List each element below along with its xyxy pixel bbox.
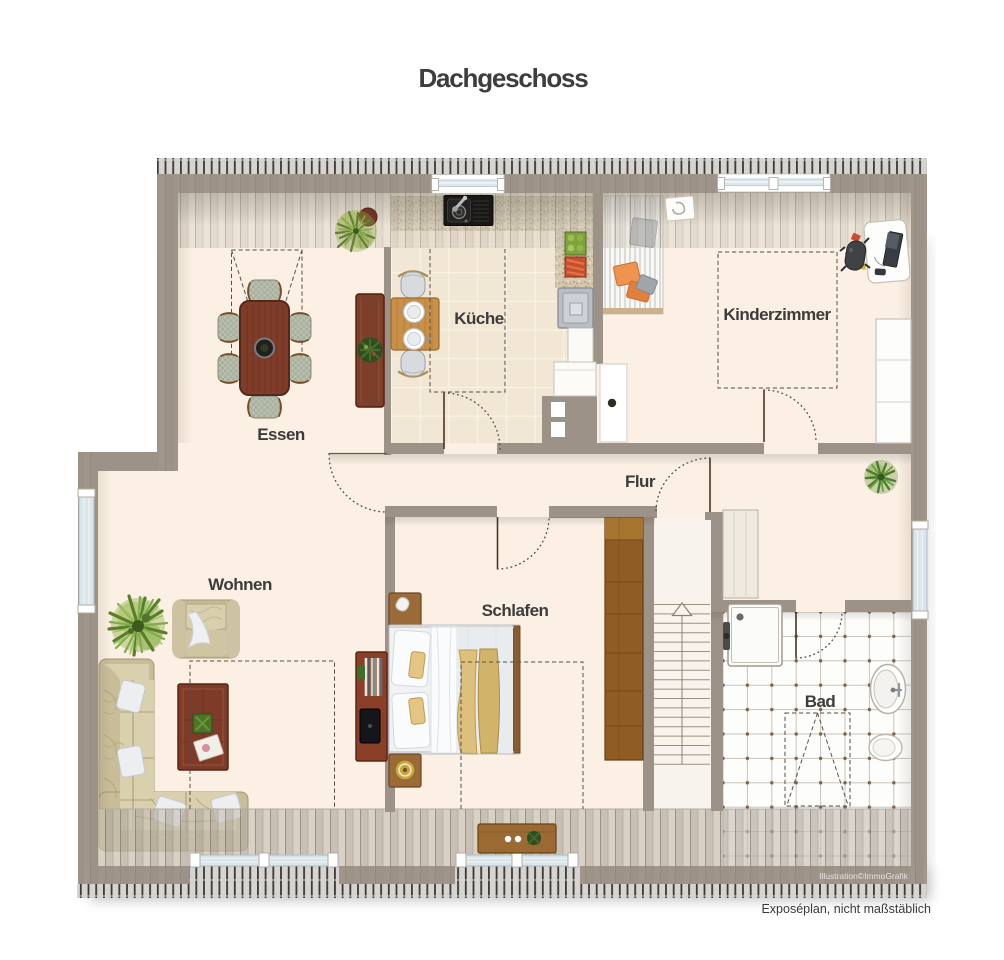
svg-text:Essen: Essen xyxy=(257,425,305,444)
svg-text:Bad: Bad xyxy=(805,692,836,711)
svg-text:Dachgeschoss: Dachgeschoss xyxy=(418,63,588,93)
svg-text:Exposéplan, nicht maßstäblich: Exposéplan, nicht maßstäblich xyxy=(761,902,931,916)
svg-text:Küche: Küche xyxy=(454,309,504,328)
svg-text:Flur: Flur xyxy=(625,472,656,491)
svg-text:Illustration©ImmoGrafik: Illustration©ImmoGrafik xyxy=(819,871,909,881)
svg-text:Wohnen: Wohnen xyxy=(208,575,272,594)
svg-text:Kinderzimmer: Kinderzimmer xyxy=(723,305,831,324)
svg-text:Schlafen: Schlafen xyxy=(482,601,549,620)
